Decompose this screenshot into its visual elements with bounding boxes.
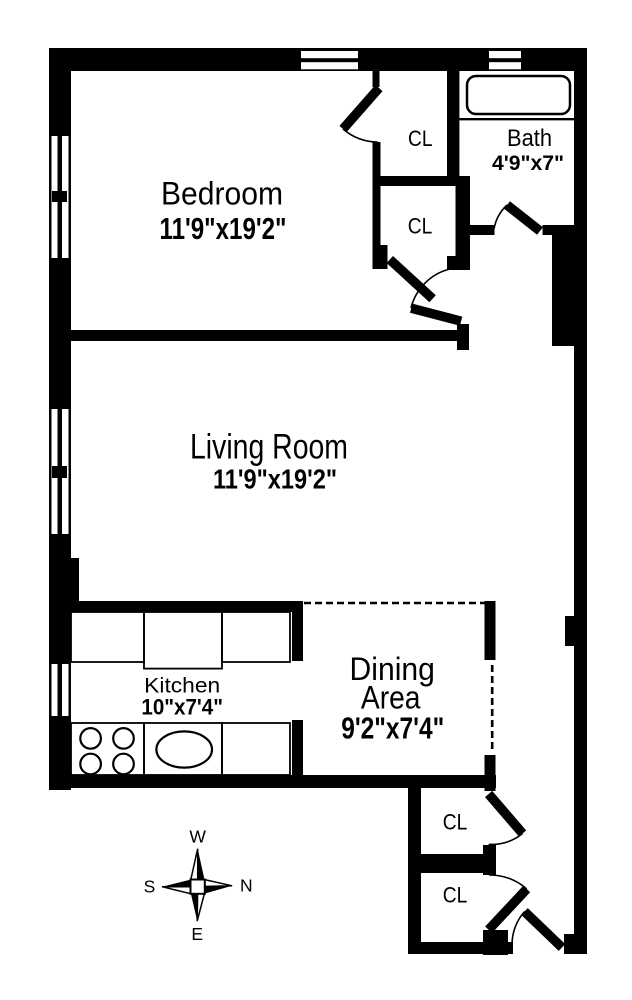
svg-text:S: S xyxy=(144,877,156,897)
svg-text:N: N xyxy=(240,875,253,895)
svg-text:Living Room: Living Room xyxy=(190,428,348,467)
svg-text:CL: CL xyxy=(408,214,433,239)
svg-text:9'2"x7'4": 9'2"x7'4" xyxy=(341,710,444,745)
svg-text:11'9"x19'2": 11'9"x19'2" xyxy=(160,211,287,246)
svg-text:W: W xyxy=(189,827,206,847)
svg-text:11'9"x19'2": 11'9"x19'2" xyxy=(213,463,337,494)
svg-text:CL: CL xyxy=(408,126,433,151)
svg-text:E: E xyxy=(191,924,203,944)
svg-text:CL: CL xyxy=(443,810,468,835)
svg-text:4'9"x7": 4'9"x7" xyxy=(492,152,564,175)
svg-text:10"x7'4": 10"x7'4" xyxy=(141,695,223,720)
svg-text:Bedroom: Bedroom xyxy=(161,176,283,212)
svg-text:Bath: Bath xyxy=(507,125,552,152)
svg-text:CL: CL xyxy=(443,883,468,908)
